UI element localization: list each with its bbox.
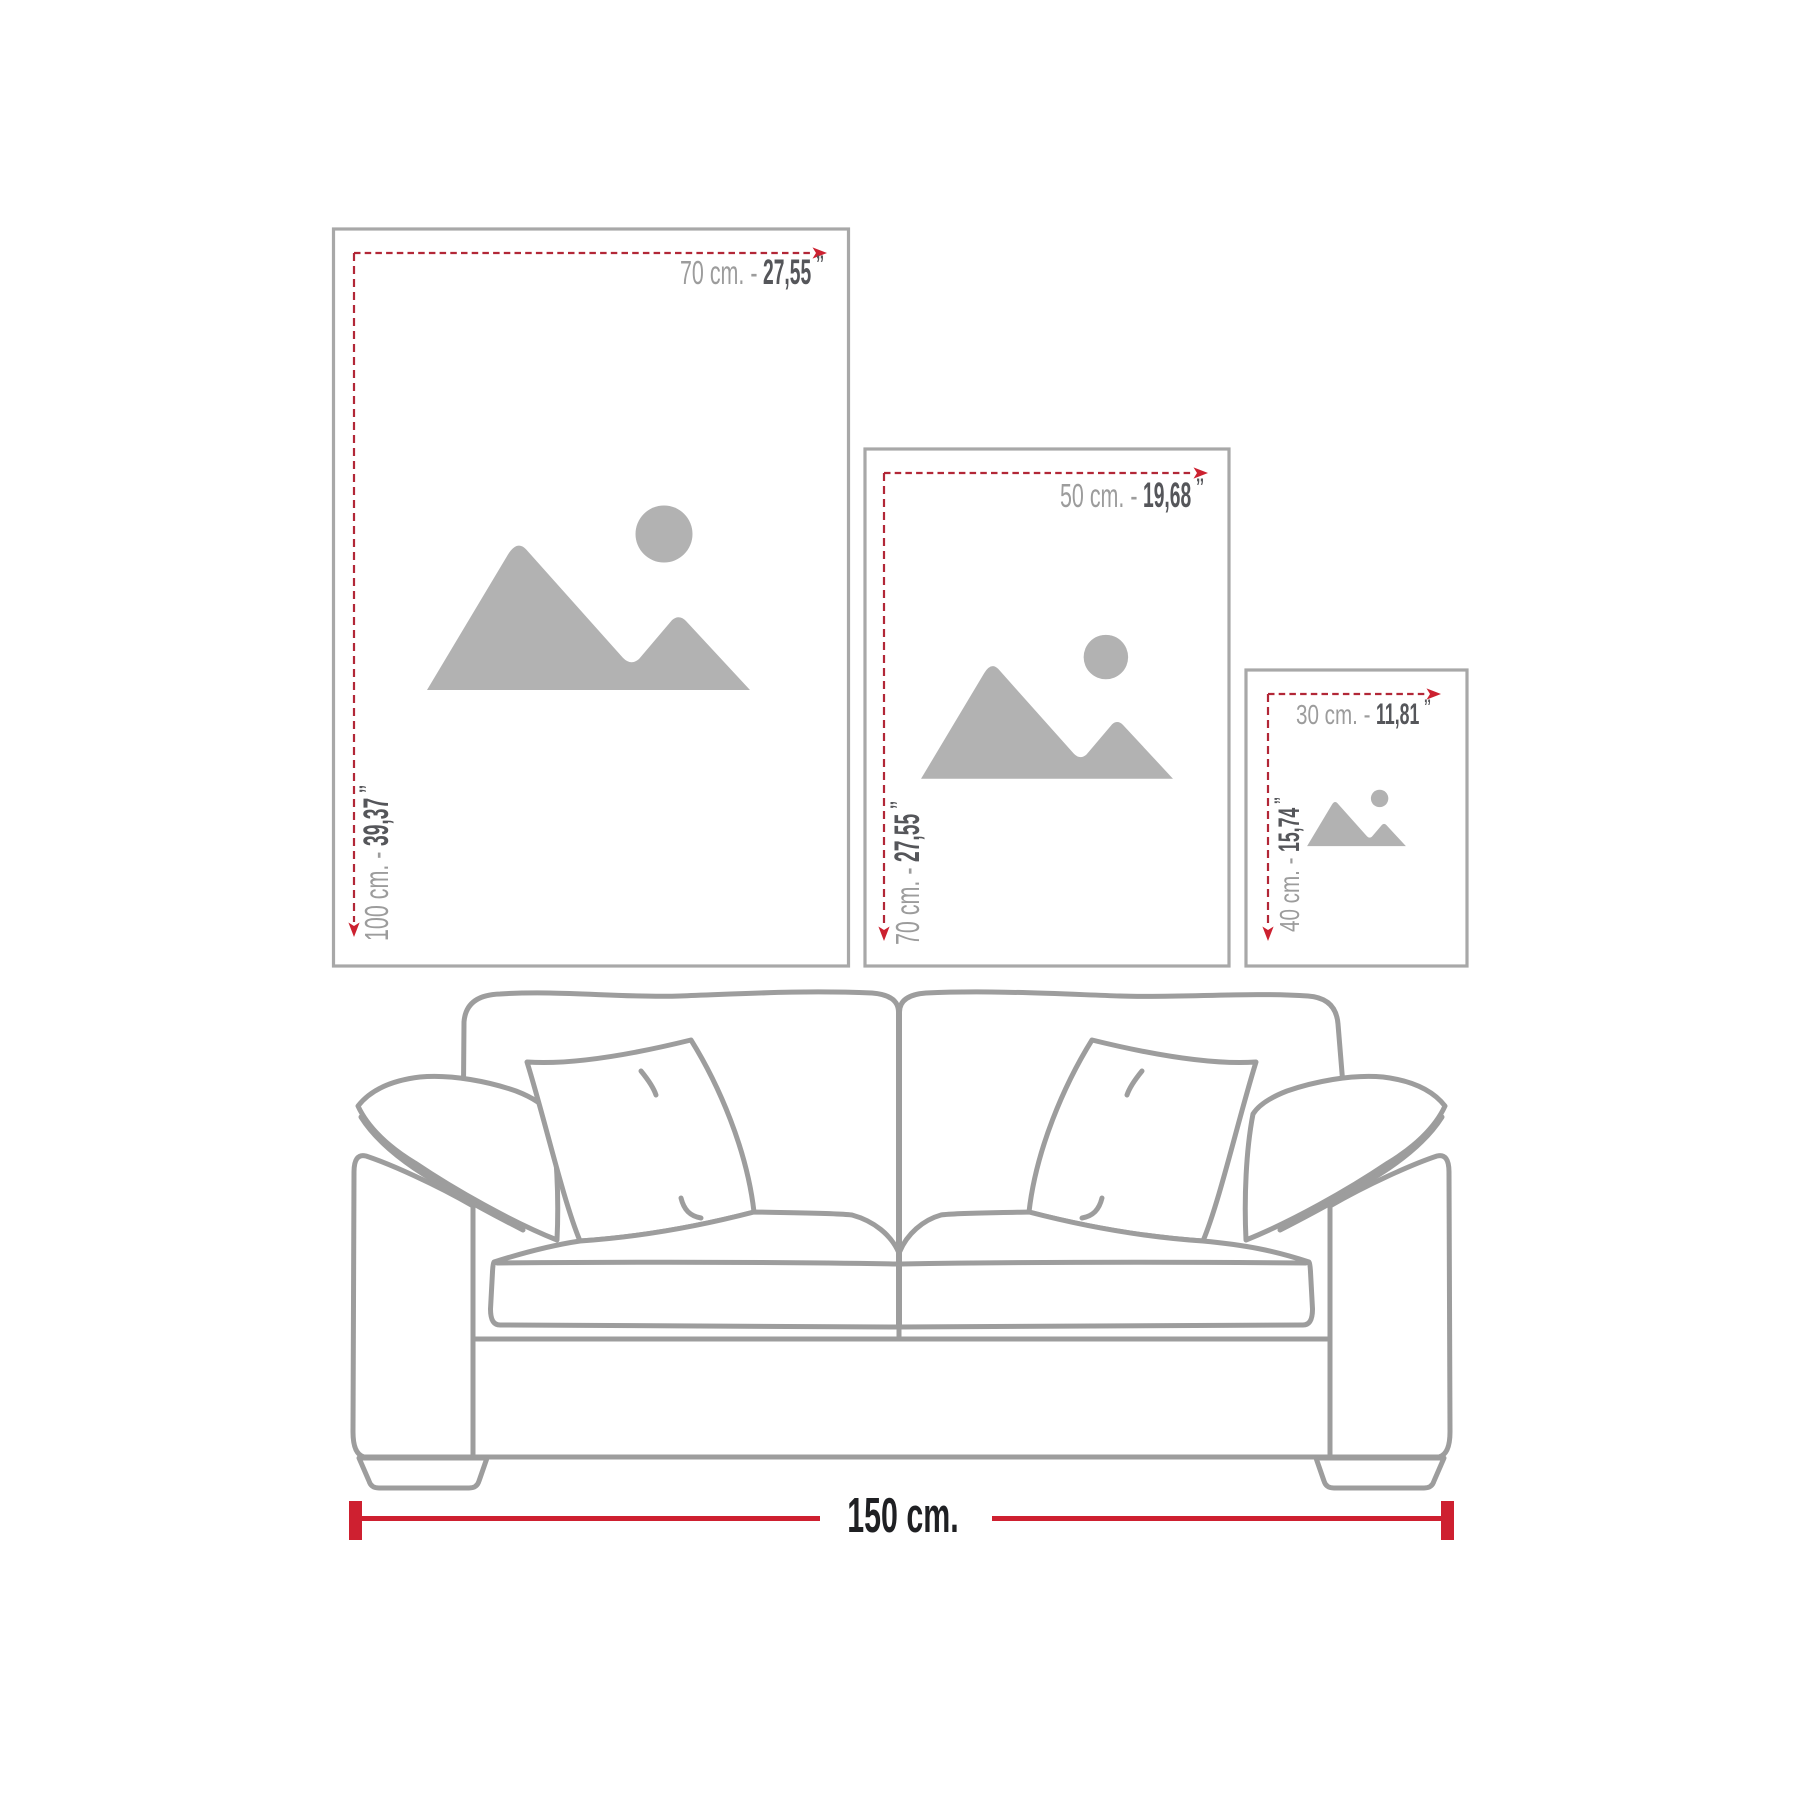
svg-text:100 cm. -: 100 cm. - — [358, 852, 395, 941]
svg-text:27,55: 27,55 — [763, 252, 811, 292]
svg-text:50 cm. -: 50 cm. - — [1060, 477, 1137, 514]
svg-text:70 cm. -: 70 cm. - — [889, 868, 926, 945]
svg-text:19,68: 19,68 — [1143, 475, 1191, 515]
svg-text:’’: ’’ — [887, 801, 911, 809]
svg-text:’’: ’’ — [356, 785, 380, 793]
svg-text:’’: ’’ — [1272, 797, 1293, 804]
svg-text:40 cm. -: 40 cm. - — [1275, 858, 1306, 932]
svg-text:150 cm.: 150 cm. — [847, 1488, 958, 1543]
svg-text:15,74: 15,74 — [1274, 807, 1307, 852]
svg-text:’’: ’’ — [1424, 697, 1431, 718]
svg-text:70 cm. -: 70 cm. - — [680, 254, 757, 291]
svg-text:’’: ’’ — [816, 252, 824, 276]
svg-text:27,55: 27,55 — [887, 814, 927, 862]
svg-text:39,37: 39,37 — [356, 798, 396, 846]
svg-text:30 cm. -: 30 cm. - — [1296, 700, 1370, 731]
svg-text:11,81: 11,81 — [1376, 699, 1419, 732]
svg-text:’’: ’’ — [1196, 475, 1204, 499]
